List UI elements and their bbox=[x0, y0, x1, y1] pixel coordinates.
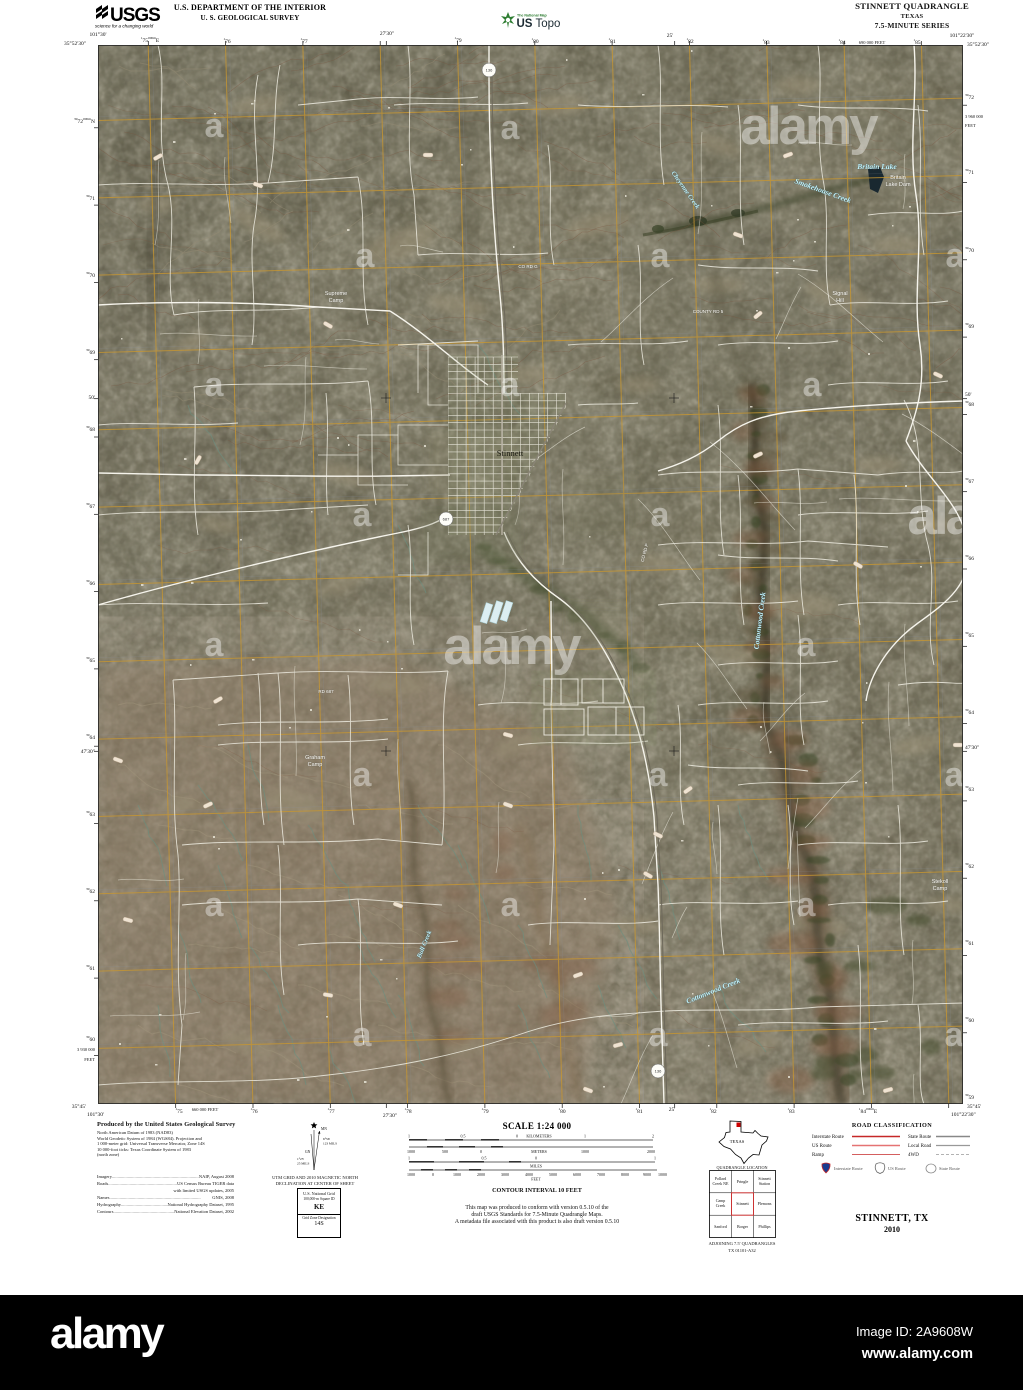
svg-text:MILES: MILES bbox=[530, 1164, 542, 1169]
svg-text:KILOMETERS: KILOMETERS bbox=[526, 1134, 551, 1139]
svg-text:6°56': 6°56' bbox=[323, 1137, 330, 1141]
svg-text:123 MILS: 123 MILS bbox=[323, 1142, 337, 1146]
svg-text:2: 2 bbox=[652, 1134, 654, 1139]
svg-text:Pringle: Pringle bbox=[737, 1179, 749, 1184]
svg-text:1: 1 bbox=[584, 1134, 586, 1139]
svg-text:Ramp: Ramp bbox=[812, 1153, 824, 1158]
svg-text:1: 1 bbox=[408, 1134, 410, 1139]
svg-text:0: 0 bbox=[535, 1156, 537, 1161]
svg-text:9000: 9000 bbox=[643, 1172, 651, 1177]
svg-text:METERS: METERS bbox=[531, 1149, 547, 1154]
svg-text:State Route: State Route bbox=[939, 1166, 960, 1171]
svg-text:8000: 8000 bbox=[621, 1172, 629, 1177]
svg-text:US Route: US Route bbox=[812, 1144, 832, 1149]
svg-text:Station: Station bbox=[759, 1181, 770, 1186]
svg-text:Interstate Route: Interstate Route bbox=[812, 1135, 845, 1140]
svg-text:Phillips: Phillips bbox=[758, 1224, 771, 1229]
svg-text:10000: 10000 bbox=[658, 1172, 667, 1177]
svg-text:Stinnett: Stinnett bbox=[736, 1201, 749, 1206]
svg-text:Local Road: Local Road bbox=[908, 1144, 932, 1149]
svg-text:1°25': 1°25' bbox=[297, 1157, 304, 1161]
svg-text:Borger: Borger bbox=[737, 1224, 749, 1229]
svg-text:1000: 1000 bbox=[407, 1172, 415, 1177]
svg-text:State Route: State Route bbox=[908, 1135, 932, 1140]
svg-text:Sanford: Sanford bbox=[714, 1224, 727, 1229]
svg-text:0: 0 bbox=[480, 1149, 482, 1154]
svg-text:2000: 2000 bbox=[647, 1149, 655, 1154]
svg-text:1: 1 bbox=[654, 1156, 656, 1161]
svg-text:GN: GN bbox=[305, 1150, 311, 1154]
svg-text:0: 0 bbox=[432, 1172, 434, 1177]
svg-text:7000: 7000 bbox=[597, 1172, 605, 1177]
svg-text:0.5: 0.5 bbox=[461, 1134, 466, 1139]
svg-text:TEXAS: TEXAS bbox=[730, 1139, 745, 1144]
svg-text:Creek: Creek bbox=[716, 1203, 726, 1208]
svg-text:US Route: US Route bbox=[888, 1166, 906, 1171]
svg-text:FEET: FEET bbox=[531, 1177, 541, 1182]
svg-text:MN: MN bbox=[321, 1127, 327, 1131]
svg-text:25 MILS: 25 MILS bbox=[297, 1162, 309, 1166]
svg-text:0.5: 0.5 bbox=[482, 1156, 487, 1161]
svg-text:6000: 6000 bbox=[573, 1172, 581, 1177]
svg-text:4WD: 4WD bbox=[908, 1153, 919, 1158]
svg-text:1000: 1000 bbox=[581, 1149, 589, 1154]
svg-text:0: 0 bbox=[516, 1134, 518, 1139]
svg-text:500: 500 bbox=[442, 1149, 448, 1154]
svg-text:1000: 1000 bbox=[407, 1149, 415, 1154]
svg-text:1: 1 bbox=[408, 1156, 410, 1161]
svg-text:2000: 2000 bbox=[477, 1172, 485, 1177]
svg-text:5000: 5000 bbox=[549, 1172, 557, 1177]
svg-text:1000: 1000 bbox=[453, 1172, 461, 1177]
svg-text:Plemons: Plemons bbox=[758, 1201, 772, 1206]
svg-text:3000: 3000 bbox=[501, 1172, 509, 1177]
svg-text:Interstate Route: Interstate Route bbox=[834, 1166, 863, 1171]
svg-text:Creek NE: Creek NE bbox=[713, 1181, 729, 1186]
